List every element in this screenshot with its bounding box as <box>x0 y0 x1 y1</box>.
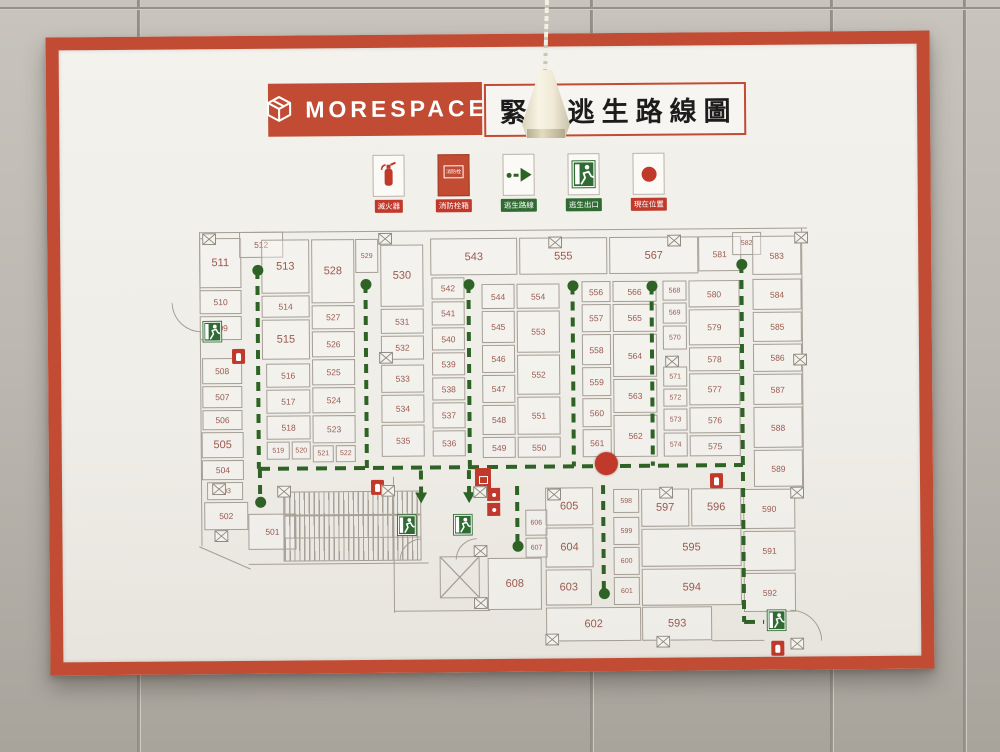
room-607: 607 <box>525 538 547 558</box>
route-arrow-down <box>415 492 427 503</box>
room-598: 598 <box>613 489 639 513</box>
room-577: 577 <box>689 373 740 405</box>
legend-label: 逃生路線 <box>501 199 537 212</box>
exit-sign-icon <box>766 609 787 632</box>
room-531: 531 <box>381 309 424 334</box>
route-start-dot <box>736 258 747 269</box>
escape-route <box>419 471 423 495</box>
service-box-icon <box>214 530 228 542</box>
route-start-dot <box>360 278 371 289</box>
legend-item-route: 逃生路線 <box>498 154 538 212</box>
sign-title-box: 緊急逃生路線圖 <box>484 82 746 137</box>
route-start-dot <box>646 280 657 291</box>
room-537: 537 <box>432 402 465 428</box>
escape-route <box>744 620 764 624</box>
room-571: 571 <box>663 366 687 386</box>
service-box-icon <box>793 354 807 366</box>
room-608: 608 <box>488 558 542 610</box>
room-528: 528 <box>311 239 355 303</box>
room-526: 526 <box>312 331 355 357</box>
service-box-icon <box>473 486 487 498</box>
room-591: 591 <box>743 531 795 571</box>
room-568: 568 <box>662 280 686 300</box>
room-544: 544 <box>481 284 514 309</box>
room-541: 541 <box>432 301 465 325</box>
room-573: 573 <box>663 408 687 430</box>
room-570: 570 <box>663 325 687 349</box>
room-543: 543 <box>430 238 517 276</box>
exit-sign-icon <box>202 320 223 343</box>
room-513: 513 <box>261 239 309 293</box>
room-600: 600 <box>614 547 640 575</box>
service-box-icon <box>659 487 673 499</box>
current-position-dot <box>594 452 617 475</box>
room-603: 603 <box>546 569 592 605</box>
service-box-icon <box>790 487 804 499</box>
brand-name: MORESPACE <box>305 95 488 123</box>
room-585: 585 <box>753 312 802 342</box>
fire-extinguisher-icon <box>710 473 723 488</box>
alarm-icon <box>487 503 500 516</box>
legend: 滅火器 消防栓 消防栓箱 逃生路線 逃生 <box>368 153 668 213</box>
room-534: 534 <box>381 395 424 423</box>
room-517: 517 <box>266 389 310 413</box>
room-516: 516 <box>266 363 310 387</box>
room-536: 536 <box>433 430 466 456</box>
room-575: 575 <box>690 435 741 456</box>
service-box-icon <box>548 236 562 248</box>
service-box-icon <box>665 356 679 368</box>
room-576: 576 <box>689 407 740 433</box>
room-524: 524 <box>312 387 355 413</box>
room-554: 554 <box>516 283 559 308</box>
room-560: 560 <box>582 398 611 427</box>
room-506: 506 <box>202 410 242 430</box>
floorplan: 5115105095085075065055045035025015125135… <box>194 225 825 662</box>
legend-label: 消防栓箱 <box>436 199 472 212</box>
room-567: 567 <box>609 236 698 274</box>
room-538: 538 <box>432 377 465 400</box>
room-540: 540 <box>432 327 465 350</box>
room-520: 520 <box>292 441 311 459</box>
brand-logo-block: MORESPACE <box>268 82 482 137</box>
wall-seam <box>963 0 966 752</box>
fire-hydrant-icon: 消防栓 <box>437 154 469 196</box>
escape-route <box>466 284 471 467</box>
room-580: 580 <box>688 280 739 307</box>
route-end-dot <box>512 540 523 551</box>
room-535: 535 <box>382 425 425 457</box>
wall-segment <box>712 640 764 642</box>
room-590: 590 <box>743 489 795 529</box>
room-539: 539 <box>432 352 465 375</box>
room-604: 604 <box>545 527 593 567</box>
service-box-icon <box>381 485 395 497</box>
room-548: 548 <box>482 405 515 435</box>
room-507: 507 <box>202 386 242 408</box>
room-553: 553 <box>517 310 560 352</box>
legend-item-exit: 逃生出口 <box>563 153 603 211</box>
escape-route-icon <box>502 154 534 196</box>
route-start-dot <box>252 264 263 275</box>
room-558: 558 <box>582 334 611 365</box>
room-593: 593 <box>642 606 712 641</box>
service-box-icon <box>379 352 393 364</box>
room-552: 552 <box>517 354 560 394</box>
service-box-icon <box>202 233 216 245</box>
escape-route <box>255 270 261 469</box>
emergency-exit-icon <box>567 153 599 195</box>
room-588: 588 <box>753 407 802 448</box>
service-box-icon <box>545 633 559 645</box>
service-box-icon <box>794 231 808 243</box>
room-505: 505 <box>202 432 244 458</box>
wall-segment <box>199 228 807 234</box>
room-514: 514 <box>262 295 310 317</box>
room-569: 569 <box>663 302 687 323</box>
room-504: 504 <box>202 460 244 480</box>
room-545: 545 <box>482 311 515 343</box>
room-518: 518 <box>266 415 310 439</box>
door-arc <box>172 302 202 332</box>
room-510: 510 <box>199 290 241 314</box>
room-546: 546 <box>482 345 515 373</box>
room-502: 502 <box>204 502 248 530</box>
escape-route <box>570 285 575 466</box>
wall-seam <box>0 7 1000 9</box>
room-579: 579 <box>689 309 740 345</box>
exit-sign-icon <box>396 514 417 537</box>
room-574: 574 <box>664 432 688 456</box>
room-599: 599 <box>613 517 639 545</box>
room-530: 530 <box>380 245 423 307</box>
room-587: 587 <box>753 374 802 405</box>
service-box-icon <box>547 488 561 500</box>
elevator-shaft <box>440 556 480 598</box>
legend-item-hydrant: 消防栓 消防栓箱 <box>433 154 473 212</box>
service-box-icon <box>212 483 226 495</box>
escape-route <box>467 470 471 494</box>
legend-label: 逃生出口 <box>566 198 602 211</box>
room-572: 572 <box>663 388 687 406</box>
room-522: 522 <box>336 445 356 462</box>
service-box-icon <box>790 638 804 650</box>
room-602: 602 <box>546 607 641 642</box>
room-589: 589 <box>754 450 803 487</box>
alarm-icon <box>487 488 500 501</box>
room-559: 559 <box>582 367 611 396</box>
escape-route <box>515 486 519 546</box>
fire-extinguisher-icon <box>771 641 784 656</box>
fire-extinguisher-icon <box>372 155 404 197</box>
room-606: 606 <box>525 510 547 536</box>
room-596: 596 <box>691 488 741 526</box>
service-box-icon <box>474 545 488 557</box>
legend-label: 滅火器 <box>375 200 404 213</box>
room-515: 515 <box>262 319 310 359</box>
room-578: 578 <box>689 347 740 371</box>
wall-segment <box>394 610 490 612</box>
route-end-dot <box>598 588 609 599</box>
service-box-icon <box>474 597 488 609</box>
room-549: 549 <box>483 437 516 458</box>
room-592: 592 <box>744 573 796 612</box>
service-box-icon <box>667 234 681 246</box>
room-542: 542 <box>431 277 464 299</box>
current-position-icon <box>632 153 664 195</box>
room-525: 525 <box>312 359 355 385</box>
legend-item-position: 現在位置 <box>628 153 668 211</box>
room-511: 511 <box>199 238 241 288</box>
room-523: 523 <box>312 415 355 443</box>
room-550: 550 <box>518 436 561 457</box>
room-529: 529 <box>355 239 378 273</box>
exit-sign-icon <box>452 513 473 536</box>
escape-route <box>259 463 743 471</box>
room-557: 557 <box>582 304 611 332</box>
room-594: 594 <box>642 568 742 606</box>
room-547: 547 <box>482 375 515 403</box>
escape-route <box>363 284 368 468</box>
room-519: 519 <box>267 442 290 460</box>
room-555: 555 <box>519 237 607 275</box>
room-584: 584 <box>752 279 801 310</box>
room-601: 601 <box>614 577 640 605</box>
room-551: 551 <box>517 396 560 434</box>
route-start-dot <box>463 279 474 290</box>
service-box-icon <box>656 636 670 648</box>
morespace-cube-icon <box>262 93 296 127</box>
room-527: 527 <box>312 305 355 329</box>
route-end-dot <box>255 496 266 507</box>
escape-route <box>601 485 606 593</box>
legend-item-extinguisher: 滅火器 <box>368 155 408 213</box>
room-595: 595 <box>641 528 741 567</box>
service-box-icon <box>378 233 392 245</box>
wall-segment <box>199 546 251 570</box>
legend-label: 現在位置 <box>631 198 667 211</box>
wall-segment <box>249 562 429 565</box>
service-box-icon <box>277 486 291 498</box>
route-start-dot <box>567 280 578 291</box>
room-521: 521 <box>313 445 334 462</box>
fire-extinguisher-icon <box>232 349 245 364</box>
room-556: 556 <box>581 281 610 302</box>
evacuation-sign-board: MORESPACE 緊急逃生路線圖 滅火器 消防栓 消防栓箱 <box>46 31 935 676</box>
room-533: 533 <box>381 365 424 393</box>
